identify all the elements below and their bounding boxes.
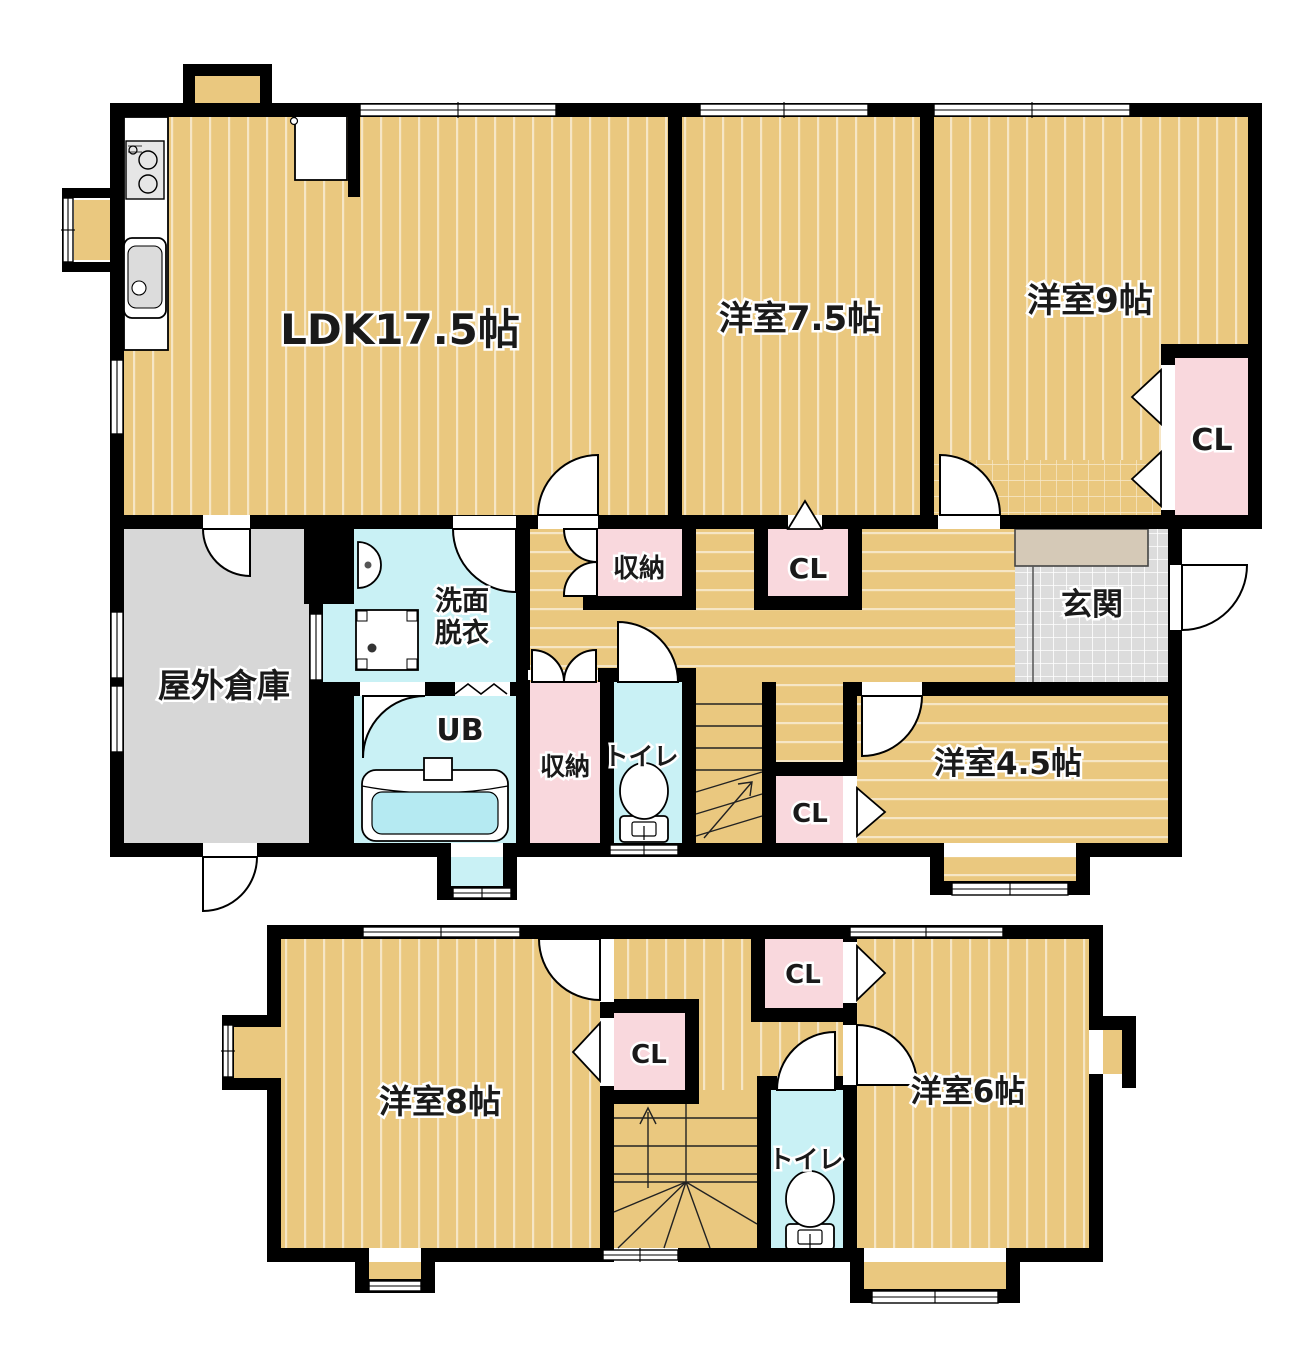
label-storage2: 収納 <box>540 752 590 781</box>
label-cl-top: CL <box>785 960 821 990</box>
label-cl9: CL <box>1191 423 1232 458</box>
window-9-top <box>934 102 1130 118</box>
window-ldk-left <box>111 360 123 434</box>
label-room9: 洋室9帖 <box>1027 281 1153 321</box>
bathtub-icon <box>362 758 508 841</box>
label-cl-mid: CL <box>792 799 828 829</box>
window-ubbay-bottom <box>453 886 511 898</box>
floorplan-svg: LDK17.5帖 洋室7.5帖 洋室9帖 CL 収納 CL 洗面 脱衣 屋外倉庫… <box>0 0 1315 1368</box>
window-6bay-bottom <box>872 1289 998 1303</box>
toilet1-icon <box>620 763 668 842</box>
room-8-bay-bottom <box>369 1262 421 1281</box>
window-ldk-top <box>360 102 556 118</box>
label-cl-left: CL <box>631 1040 667 1070</box>
window-storage-left2 <box>111 686 123 752</box>
label-room8: 洋室8帖 <box>379 1082 501 1121</box>
stove-icon <box>126 141 164 199</box>
label-room6: 洋室6帖 <box>911 1074 1026 1110</box>
washroom-floor-strip <box>323 604 354 682</box>
label-unit-bath: UB <box>436 713 483 748</box>
room-45-bay-floor <box>944 857 1076 883</box>
refrigerator-icon <box>291 115 348 180</box>
door-ub-zigzag <box>455 684 510 694</box>
label-hall-storage: 収納 <box>613 553 665 584</box>
label-toilet2: トイレ <box>768 1145 843 1174</box>
window-stairs-bottom <box>603 1248 678 1262</box>
label-entrance: 玄関 <box>1061 587 1123 623</box>
room-6-alcove <box>1103 1030 1122 1074</box>
label-toilet1: トイレ <box>603 742 678 771</box>
window-bay-ldk <box>61 198 75 262</box>
room-6-bay-bottom <box>864 1262 1006 1289</box>
floor1-plan: LDK17.5帖 洋室7.5帖 洋室9帖 CL 収納 CL 洗面 脱衣 屋外倉庫… <box>61 64 1262 911</box>
floor2-plan: 洋室8帖 CL CL トイレ 洋室6帖 <box>221 925 1136 1303</box>
corridor-pocket-floor <box>776 682 843 762</box>
window-toilet1-bottom <box>610 843 678 857</box>
label-room75: 洋室7.5帖 <box>719 299 881 339</box>
sink-icon <box>124 238 166 318</box>
window-6-top <box>850 925 1003 939</box>
window-8-bay-left <box>221 1025 235 1077</box>
label-hall-cl: CL <box>789 552 828 585</box>
window-8bump-bottom <box>369 1281 421 1291</box>
window-75-top <box>700 102 868 118</box>
window-45bay-bottom <box>952 881 1068 895</box>
label-outdoor-storage: 屋外倉庫 <box>158 666 290 705</box>
label-room45: 洋室4.5帖 <box>934 746 1082 782</box>
room-8-bay-left <box>234 1027 281 1078</box>
window-washroom-west <box>310 614 322 680</box>
window-8-top <box>363 925 520 939</box>
label-washroom-2: 脱衣 <box>435 617 489 649</box>
label-washroom-1: 洗面 <box>435 586 489 617</box>
washing-machine-icon <box>356 610 418 670</box>
floorplan-canvas: LDK17.5帖 洋室7.5帖 洋室9帖 CL 収納 CL 洗面 脱衣 屋外倉庫… <box>0 0 1315 1368</box>
entrance-step <box>1015 529 1148 566</box>
window-storage-left1 <box>111 612 123 678</box>
floor2-room-fills <box>234 939 1122 1289</box>
label-ldk: LDK17.5帖 <box>280 305 520 354</box>
toilet2-icon <box>786 1171 834 1250</box>
